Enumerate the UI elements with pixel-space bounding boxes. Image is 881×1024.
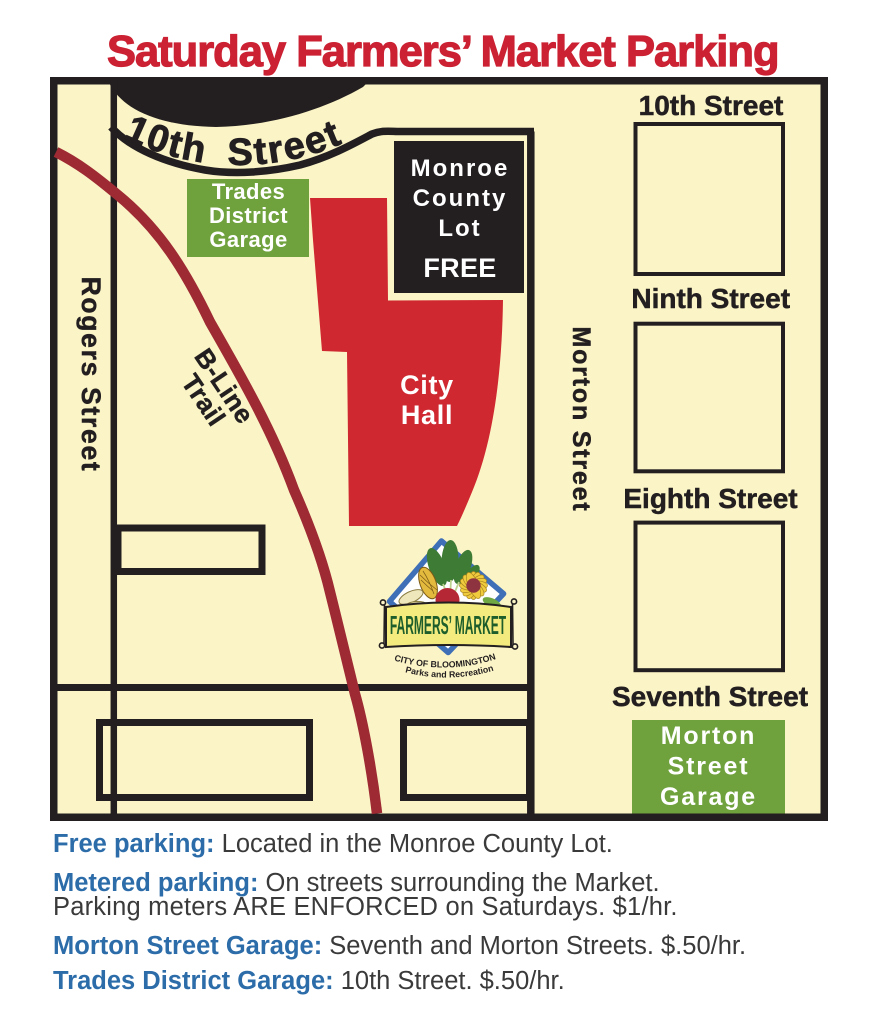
svg-text:Ninth Street: Ninth Street: [631, 283, 790, 314]
svg-text:Trades: Trades: [212, 179, 285, 204]
svg-text:Garage: Garage: [209, 227, 287, 252]
svg-text:Eighth Street: Eighth Street: [623, 483, 797, 514]
svg-text:Hall: Hall: [401, 400, 453, 430]
svg-text:Parking meters ARE ENFORCED on: Parking meters ARE ENFORCED on Saturdays…: [53, 893, 678, 921]
svg-text:Trades District Garage: 10th S: Trades District Garage: 10th Street. $.5…: [53, 967, 565, 995]
svg-text:Garage: Garage: [660, 783, 757, 811]
svg-text:Seventh Street: Seventh Street: [612, 681, 808, 712]
svg-text:City: City: [400, 370, 454, 400]
svg-text:FARMERS’ MARKET: FARMERS’ MARKET: [390, 612, 506, 640]
svg-text:10th Street: 10th Street: [639, 90, 784, 121]
svg-text:Morton Street: Morton Street: [567, 327, 595, 513]
svg-text:Street: Street: [668, 753, 750, 781]
svg-text:Lot: Lot: [438, 215, 481, 242]
svg-text:Morton Street Garage: Seventh: Morton Street Garage: Seventh and Morton…: [53, 932, 746, 960]
svg-text:FREE: FREE: [423, 253, 496, 283]
svg-text:Morton: Morton: [661, 722, 757, 750]
svg-text:District: District: [209, 203, 288, 228]
svg-text:Monroe: Monroe: [411, 155, 510, 182]
svg-text:Rogers Street: Rogers Street: [76, 277, 106, 473]
svg-text:County: County: [413, 185, 508, 212]
svg-text:Saturday Farmers’ Market Parki: Saturday Farmers’ Market Parking: [107, 28, 779, 76]
svg-text:Free parking: Located in the M: Free parking: Located in the Monroe Coun…: [53, 830, 613, 858]
